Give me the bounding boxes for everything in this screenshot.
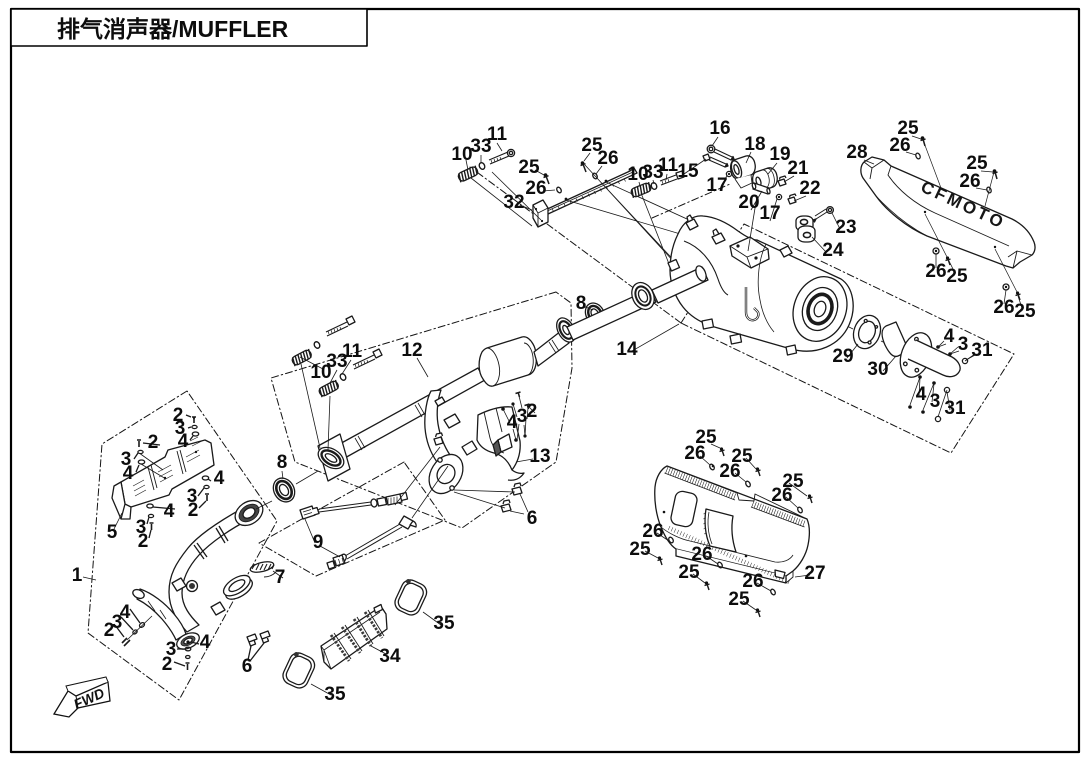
svg-text:排气消声器/MUFFLER: 排气消声器/MUFFLER xyxy=(57,16,289,42)
svg-text:4: 4 xyxy=(200,632,211,653)
svg-text:26: 26 xyxy=(597,148,618,169)
svg-text:2: 2 xyxy=(162,654,173,675)
svg-text:32: 32 xyxy=(503,192,524,213)
svg-text:12: 12 xyxy=(401,340,422,361)
svg-text:14: 14 xyxy=(616,339,638,360)
svg-text:11: 11 xyxy=(487,124,508,145)
svg-text:26: 26 xyxy=(889,135,910,156)
svg-text:4: 4 xyxy=(123,463,134,484)
svg-text:10: 10 xyxy=(451,144,472,165)
svg-text:6: 6 xyxy=(527,508,538,529)
svg-text:30: 30 xyxy=(867,359,888,380)
svg-text:17: 17 xyxy=(706,175,727,196)
svg-text:2: 2 xyxy=(104,620,115,641)
svg-text:26: 26 xyxy=(959,171,980,192)
svg-text:17: 17 xyxy=(759,203,780,224)
svg-text:4: 4 xyxy=(178,431,189,452)
svg-text:27: 27 xyxy=(804,563,825,584)
svg-text:5: 5 xyxy=(107,522,118,543)
svg-text:26: 26 xyxy=(925,261,946,282)
svg-text:3: 3 xyxy=(517,406,528,427)
svg-text:13: 13 xyxy=(529,446,550,467)
svg-text:16: 16 xyxy=(709,118,730,139)
svg-text:4: 4 xyxy=(164,501,175,522)
svg-text:22: 22 xyxy=(799,178,820,199)
svg-text:25: 25 xyxy=(678,562,700,583)
svg-text:23: 23 xyxy=(835,217,856,238)
svg-text:18: 18 xyxy=(744,134,765,155)
svg-text:31: 31 xyxy=(971,340,993,361)
svg-text:26: 26 xyxy=(771,485,792,506)
svg-text:25: 25 xyxy=(946,266,968,287)
svg-text:2: 2 xyxy=(527,401,538,422)
svg-text:26: 26 xyxy=(993,297,1014,318)
svg-text:8: 8 xyxy=(277,452,288,473)
svg-text:4: 4 xyxy=(944,326,955,347)
svg-text:9: 9 xyxy=(313,532,324,553)
svg-text:26: 26 xyxy=(684,443,705,464)
svg-text:11: 11 xyxy=(658,155,679,176)
svg-text:26: 26 xyxy=(525,178,546,199)
svg-text:6: 6 xyxy=(242,656,253,677)
svg-text:35: 35 xyxy=(433,613,455,634)
svg-text:25: 25 xyxy=(1014,301,1036,322)
svg-text:8: 8 xyxy=(576,293,587,314)
svg-text:34: 34 xyxy=(379,646,401,667)
svg-text:11: 11 xyxy=(342,341,363,362)
svg-text:2: 2 xyxy=(148,432,159,453)
svg-text:24: 24 xyxy=(822,240,844,261)
svg-text:25: 25 xyxy=(728,589,750,610)
svg-text:35: 35 xyxy=(324,684,346,705)
svg-text:25: 25 xyxy=(629,539,651,560)
svg-text:28: 28 xyxy=(846,142,867,163)
svg-text:3: 3 xyxy=(958,334,969,355)
svg-text:2: 2 xyxy=(138,531,149,552)
svg-text:31: 31 xyxy=(944,398,966,419)
svg-text:26: 26 xyxy=(719,461,740,482)
svg-text:4: 4 xyxy=(916,384,927,405)
svg-text:7: 7 xyxy=(275,567,286,588)
svg-text:20: 20 xyxy=(738,192,759,213)
svg-text:29: 29 xyxy=(832,346,853,367)
svg-text:25: 25 xyxy=(518,157,540,178)
svg-text:15: 15 xyxy=(677,161,699,182)
svg-text:4: 4 xyxy=(214,468,225,489)
svg-text:1: 1 xyxy=(72,565,83,586)
svg-text:21: 21 xyxy=(787,158,809,179)
svg-text:2: 2 xyxy=(188,500,199,521)
svg-text:3: 3 xyxy=(930,391,941,412)
